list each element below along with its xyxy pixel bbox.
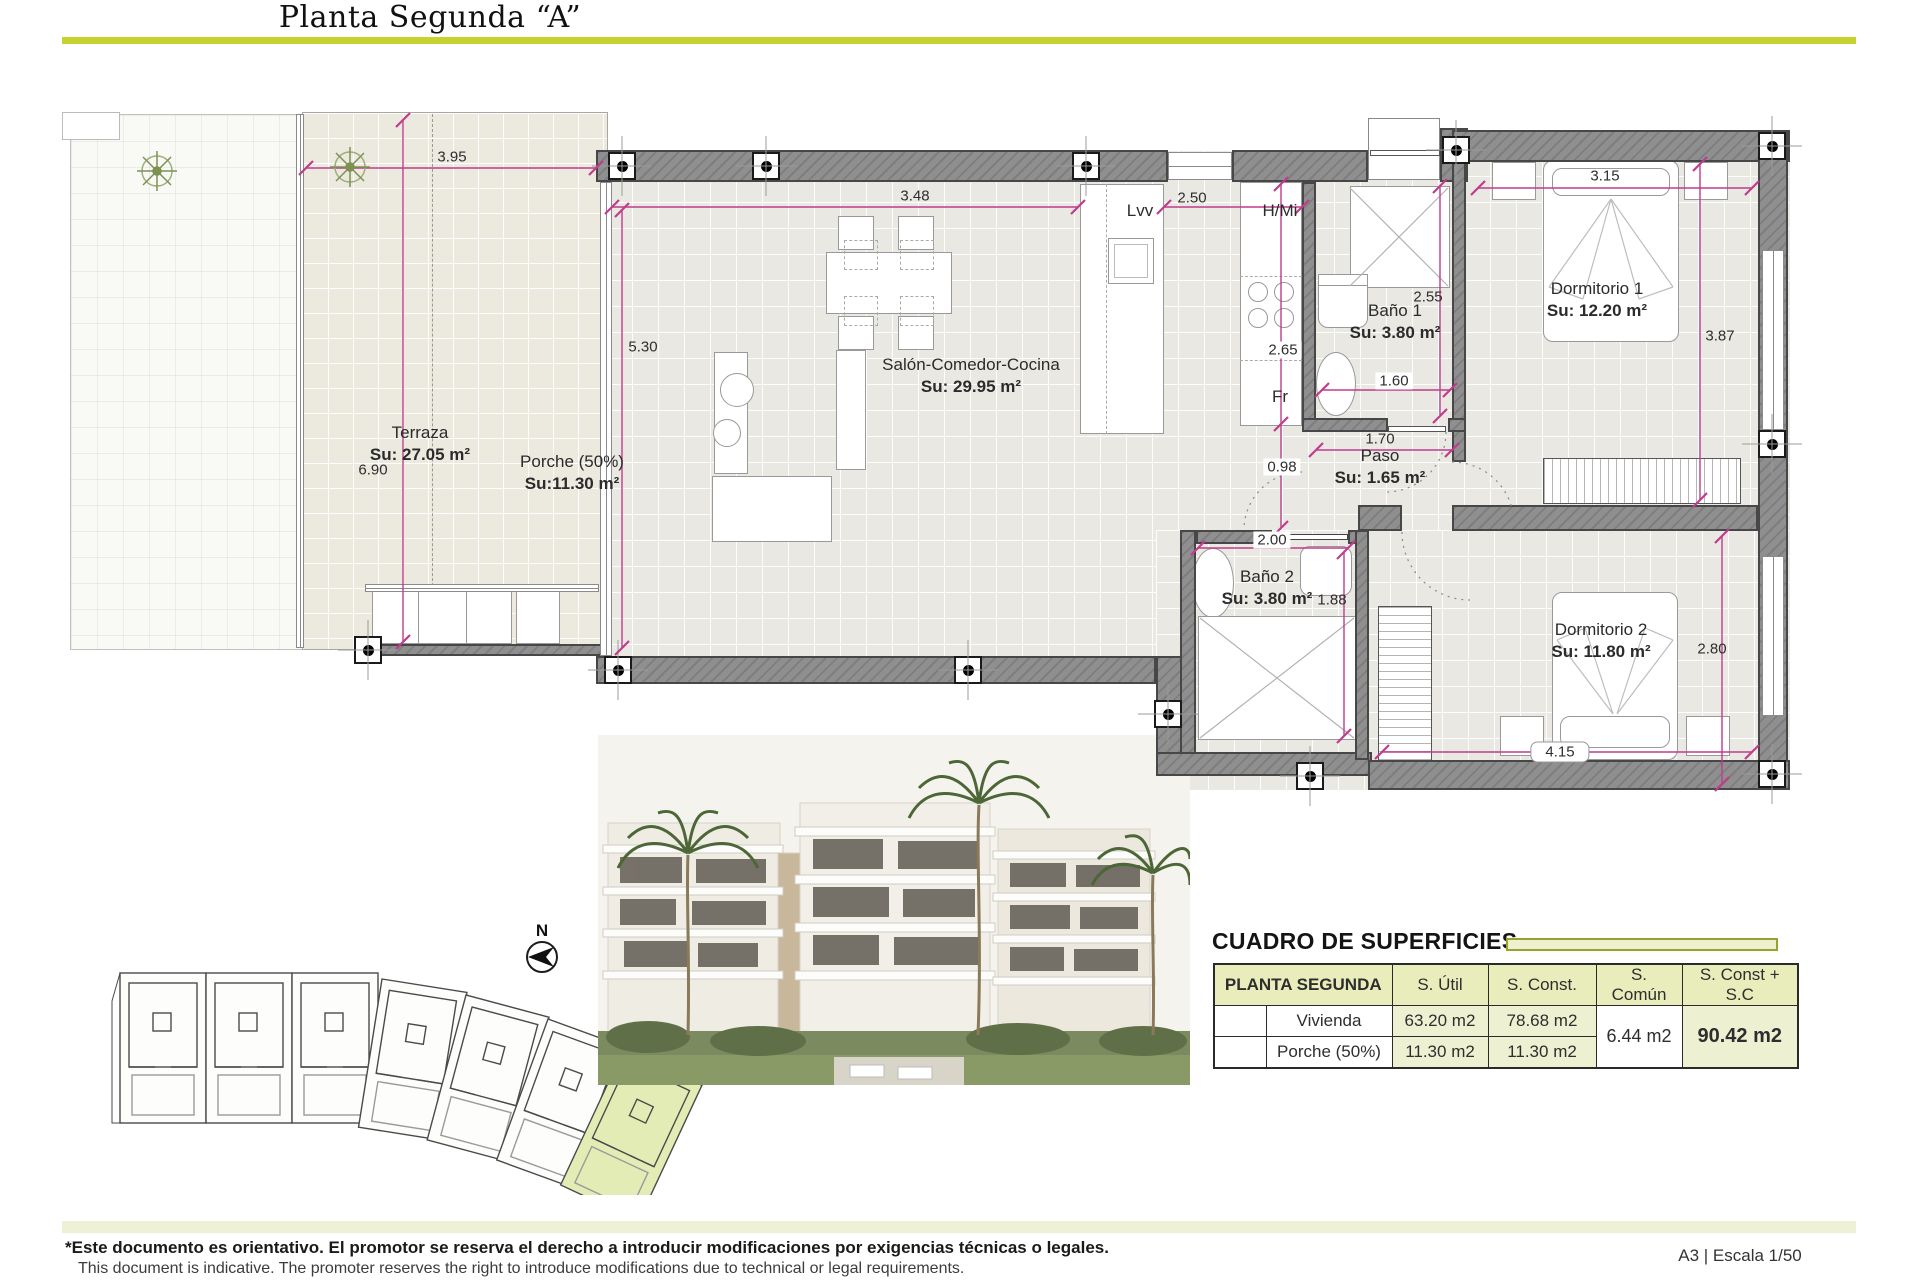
terrace-balustrade xyxy=(365,584,599,592)
comun-value: 6.44 m2 xyxy=(1596,1006,1682,1069)
title-accent-line xyxy=(62,37,1856,44)
dim-3-15: 3.15 xyxy=(1590,168,1619,185)
column xyxy=(604,656,632,684)
dim-1-88: 1.88 xyxy=(1317,592,1346,609)
room-label-bano2: Baño 2Su: 3.80 m² xyxy=(1222,566,1313,610)
footer-accent-bar xyxy=(62,1221,1856,1233)
table-row: Vivienda 63.20 m2 78.68 m2 6.44 m2 90.42… xyxy=(1214,1006,1798,1037)
hob-burner xyxy=(1248,282,1268,302)
dim-3-95: 3.95 xyxy=(437,149,466,166)
window-salon-terrace xyxy=(600,182,612,656)
wall-dorm-divider xyxy=(1452,505,1758,531)
row-vivienda: Vivienda xyxy=(1266,1006,1392,1037)
column xyxy=(354,636,382,664)
column xyxy=(1442,136,1470,164)
sofa xyxy=(712,476,832,542)
column xyxy=(1072,152,1100,180)
column xyxy=(752,152,780,180)
dim-3-48: 3.48 xyxy=(900,188,929,205)
terrace-bench xyxy=(372,590,512,644)
entry-landing xyxy=(1368,118,1440,180)
counter-dashed-line xyxy=(1240,360,1302,361)
dim-0-98: 0.98 xyxy=(1263,459,1300,476)
bench-divider xyxy=(418,590,419,644)
room-label-bano1: Baño 1Su: 3.80 m² xyxy=(1350,300,1441,344)
window-kitchen-top xyxy=(1168,152,1232,180)
dim-1-70: 1.70 xyxy=(1365,431,1394,448)
terrace-bench-small xyxy=(516,590,560,644)
nightstand xyxy=(1684,162,1728,200)
chair-seat-dashed xyxy=(900,296,934,326)
hob-burner xyxy=(1274,308,1294,328)
wall-bath2-left xyxy=(1180,530,1196,756)
label-dishwasher: Lvv xyxy=(1127,201,1153,221)
wall-bath1-bottom-b xyxy=(1448,418,1466,432)
dim-2-80: 2.80 xyxy=(1697,641,1726,658)
counter-dashed-line xyxy=(1240,276,1302,277)
side-table-round xyxy=(713,419,741,447)
label-fridge: Fr xyxy=(1272,387,1288,407)
counter-dashed-line xyxy=(1106,184,1107,434)
porche-const: 11.30 m2 xyxy=(1488,1037,1596,1069)
wardrobe-dorm1 xyxy=(1543,458,1741,504)
render-photo xyxy=(598,735,1190,1085)
tv-sideboard xyxy=(836,350,866,470)
wall-dorm1-left xyxy=(1452,162,1466,462)
sofa-chaise xyxy=(714,352,748,474)
column xyxy=(1758,760,1786,788)
wall-terrace-bottom xyxy=(354,644,602,656)
vivienda-util: 63.20 m2 xyxy=(1392,1006,1488,1037)
roof-notch xyxy=(62,112,120,140)
dim-5-30: 5.30 xyxy=(628,339,657,356)
nightstand xyxy=(1492,162,1536,200)
wall-dorm1-top xyxy=(1452,130,1790,162)
wall-bath1-left xyxy=(1302,182,1316,432)
terrace-floor xyxy=(302,112,608,650)
disclaimer-en: This document is indicative. The promote… xyxy=(78,1260,964,1278)
room-label-salon: Salón-Comedor-CocinaSu: 29.95 m² xyxy=(882,354,1060,398)
drawing-sheet: Planta Segunda “A” xyxy=(0,0,1920,1280)
porche-util: 11.30 m2 xyxy=(1392,1037,1488,1069)
room-label-dorm2: Dormitorio 2Su: 11.80 m² xyxy=(1551,619,1650,663)
surfaces-title-bar xyxy=(1506,938,1778,951)
wall-bath2-bottom xyxy=(1156,752,1372,776)
dim-2-50: 2.50 xyxy=(1177,190,1206,207)
row-porche: Porche (50%) xyxy=(1266,1037,1392,1069)
bench-divider xyxy=(466,590,467,644)
shower-bath1 xyxy=(1350,186,1450,288)
dim-1-60: 1.60 xyxy=(1375,373,1412,390)
wall-salon-bottom xyxy=(596,656,1156,684)
shower-bath2 xyxy=(1198,616,1356,740)
kitchen-sink-basin xyxy=(1114,244,1148,278)
bath1-door-leaf xyxy=(1388,426,1446,432)
column xyxy=(1758,430,1786,458)
sheet-scale: A3 | Escala 1/50 xyxy=(1640,1246,1840,1266)
surfaces-table-title: CUADRO DE SUPERFICIES xyxy=(1212,928,1517,955)
wall-dorm-divider-stub xyxy=(1358,505,1402,531)
neighbor-roof xyxy=(70,114,304,650)
surfaces-table: PLANTA SEGUNDA S. Útil S. Const. S. Comú… xyxy=(1213,963,1799,1069)
window-dorm1 xyxy=(1762,250,1784,430)
dim-2-65: 2.65 xyxy=(1264,342,1301,359)
window-dorm2 xyxy=(1762,556,1784,716)
page-title: Planta Segunda “A” xyxy=(250,0,610,35)
column xyxy=(1758,132,1786,160)
wall-kitchen-top xyxy=(1232,150,1368,182)
header-s-util: S. Útil xyxy=(1392,964,1488,1006)
room-label-terraza: TerrazaSu: 27.05 m² xyxy=(370,422,470,466)
label-oven-micro: H/Mi xyxy=(1263,201,1298,221)
dim-3-87: 3.87 xyxy=(1705,328,1734,345)
chair-seat-dashed xyxy=(844,240,878,270)
header-planta: PLANTA SEGUNDA xyxy=(1214,964,1392,1006)
dim-2-00: 2.00 xyxy=(1253,532,1290,549)
wardrobe-dorm2 xyxy=(1378,606,1432,776)
column xyxy=(1154,700,1182,728)
column xyxy=(954,656,982,684)
room-label-dorm1: Dormitorio 1Su: 12.20 m² xyxy=(1547,278,1647,322)
header-s-const-sc: S. Const + S.C xyxy=(1682,964,1798,1006)
column xyxy=(608,152,636,180)
toilet-tank-bath1 xyxy=(1318,274,1368,286)
room-label-porche: Porche (50%)Su:11.30 m² xyxy=(520,451,624,495)
north-label: N xyxy=(536,921,548,941)
chair-seat-dashed xyxy=(900,240,934,270)
terrace-edge xyxy=(296,114,304,648)
kitchen-counter-left xyxy=(1080,184,1164,434)
nightstand xyxy=(1686,716,1730,756)
sink-bath1 xyxy=(1316,352,1356,416)
entry-door-leaf xyxy=(1370,150,1440,156)
vivienda-const: 78.68 m2 xyxy=(1488,1006,1596,1037)
column xyxy=(1296,762,1324,790)
room-label-paso: PasoSu: 1.65 m² xyxy=(1335,445,1426,489)
total-value: 90.42 m2 xyxy=(1682,1006,1798,1069)
header-s-comun: S. Común xyxy=(1596,964,1682,1006)
side-table-round xyxy=(720,373,754,407)
dim-4-15: 4.15 xyxy=(1530,742,1589,763)
wall-dorm2-left xyxy=(1355,530,1369,760)
disclaimer-es: *Este documento es orientativo. El promo… xyxy=(65,1238,1109,1258)
chair-seat-dashed xyxy=(844,296,878,326)
hob-burner xyxy=(1274,282,1294,302)
header-s-const: S. Const. xyxy=(1488,964,1596,1006)
dim-2-55: 2.55 xyxy=(1413,289,1442,306)
hob-burner xyxy=(1248,308,1268,328)
wall-dorm2-bottom xyxy=(1368,760,1790,790)
dim-6-90: 6.90 xyxy=(358,462,387,479)
porch-boundary-dashed xyxy=(432,114,433,646)
